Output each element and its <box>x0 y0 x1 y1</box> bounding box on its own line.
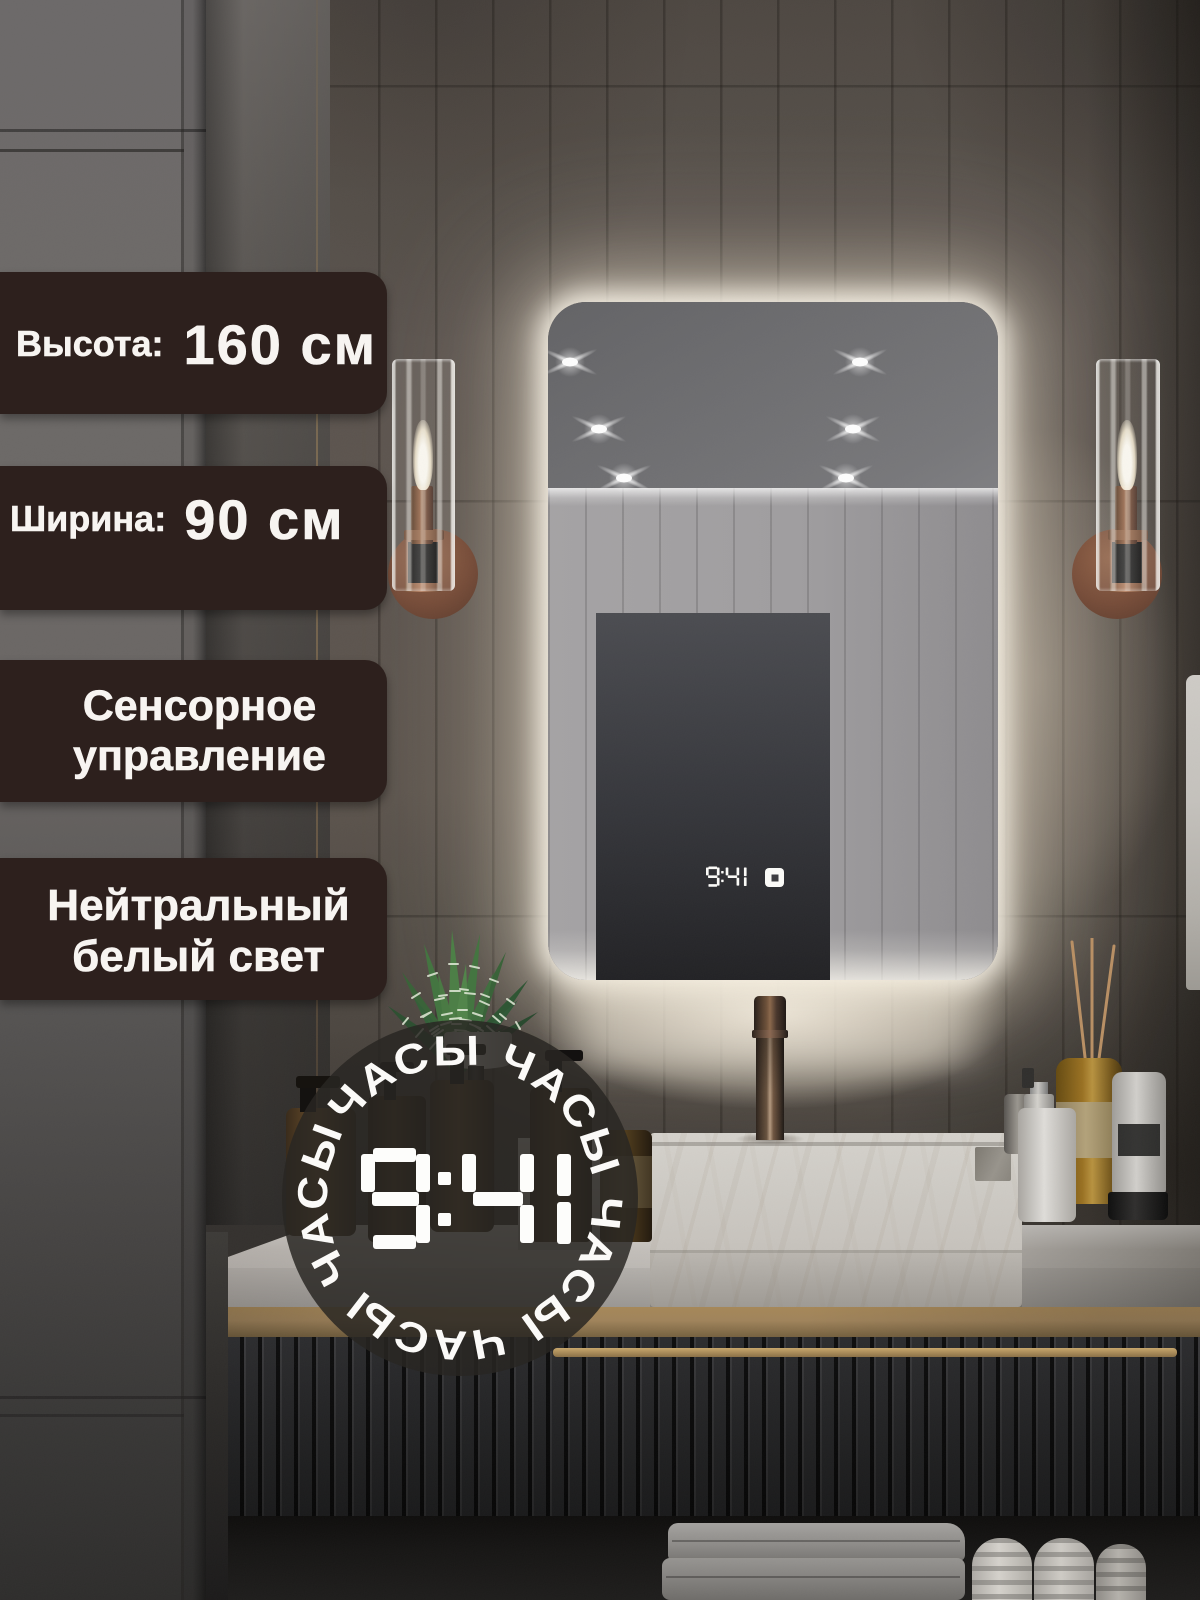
svg-text:ЧАСЫ ЧАСЫ ЧАСЫ ЧАСЫ ЧАСЫ: ЧАСЫ ЧАСЫ ЧАСЫ ЧАСЫ ЧАСЫ <box>282 1020 638 1376</box>
